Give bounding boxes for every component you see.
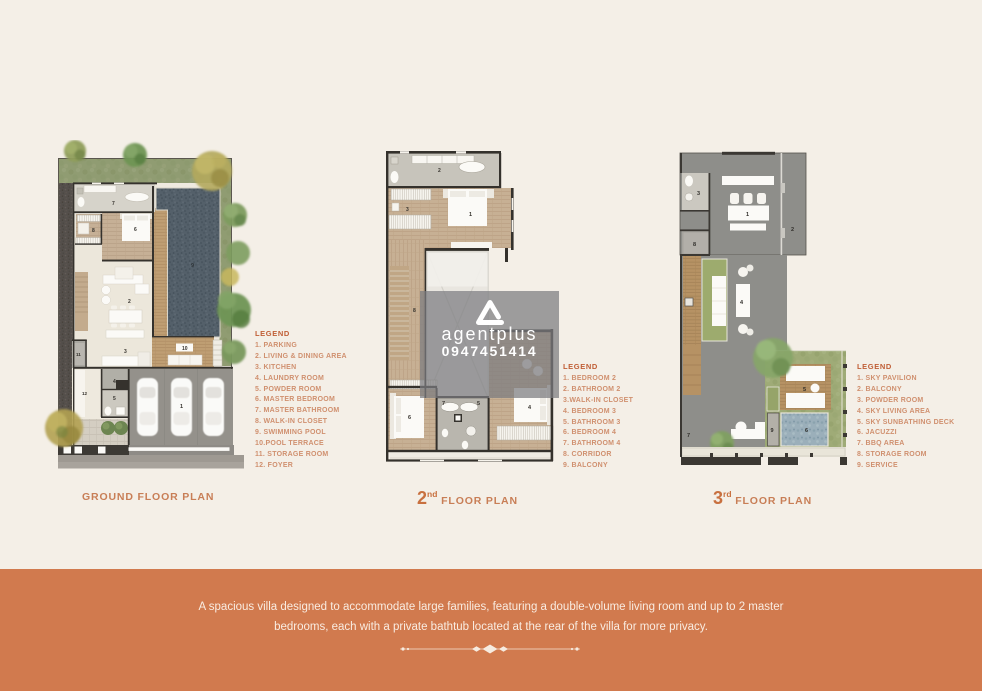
svg-text:9: 9 <box>771 428 774 434</box>
svg-text:7: 7 <box>687 433 690 439</box>
svg-text:12: 12 <box>82 391 88 396</box>
svg-text:9: 9 <box>191 263 194 269</box>
svg-text:3: 3 <box>697 191 700 197</box>
svg-text:5: 5 <box>113 396 116 402</box>
svg-text:3: 3 <box>124 349 127 355</box>
svg-text:1: 1 <box>180 404 183 410</box>
svg-text:4: 4 <box>113 379 116 385</box>
svg-text:6: 6 <box>805 428 808 434</box>
svg-text:2: 2 <box>438 168 441 174</box>
svg-text:8: 8 <box>693 242 696 248</box>
svg-text:10: 10 <box>182 346 188 352</box>
svg-text:6: 6 <box>408 415 411 421</box>
svg-text:5: 5 <box>477 401 480 407</box>
svg-text:2: 2 <box>791 227 794 233</box>
svg-text:3: 3 <box>406 207 409 213</box>
svg-text:2: 2 <box>128 299 131 305</box>
svg-text:11: 11 <box>76 352 81 357</box>
svg-text:8: 8 <box>413 308 416 314</box>
svg-text:8: 8 <box>92 228 95 234</box>
svg-text:7: 7 <box>112 201 115 207</box>
svg-text:1: 1 <box>469 212 472 218</box>
svg-text:5: 5 <box>803 387 806 393</box>
svg-text:1: 1 <box>746 212 749 218</box>
svg-text:6: 6 <box>134 227 137 233</box>
svg-text:7: 7 <box>442 401 445 407</box>
